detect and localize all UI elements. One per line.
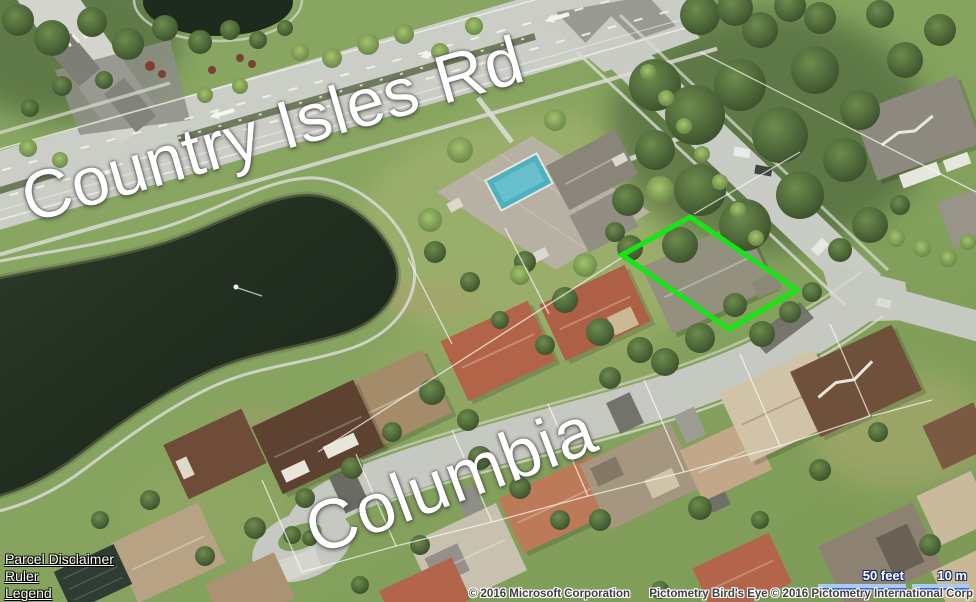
- scale-feet-label: 50 feet: [863, 568, 904, 583]
- scale-meters: 10 m: [912, 568, 969, 590]
- link-legend[interactable]: Legend: [5, 585, 114, 601]
- scale-feet: 50 feet: [818, 568, 906, 590]
- map-tool-links: Parcel Disclaimer Ruler Legend: [5, 551, 114, 601]
- lake-fountain: [234, 285, 239, 290]
- aerial-map-viewport[interactable]: Country Isles Rd Columbia Parcel Disclai…: [0, 0, 976, 602]
- attribution-pictometry: Pictometry Bird's Eye © 2016 Pictometry …: [649, 588, 973, 600]
- link-ruler[interactable]: Ruler: [5, 568, 114, 584]
- scale-meters-label: 10 m: [937, 568, 967, 583]
- scale-bar: 50 feet 10 m: [818, 568, 969, 590]
- attribution: © 2016 Microsoft Corporation Pictometry …: [469, 588, 973, 600]
- link-parcel-disclaimer[interactable]: Parcel Disclaimer: [5, 551, 114, 567]
- attribution-microsoft: © 2016 Microsoft Corporation: [469, 588, 630, 600]
